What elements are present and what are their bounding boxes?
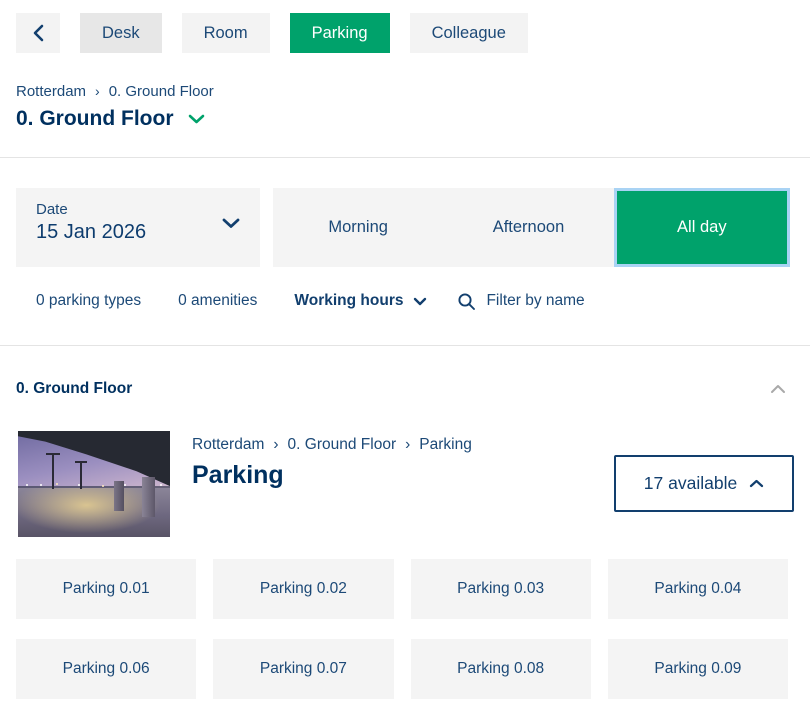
chevron-up-icon [749,479,764,488]
breadcrumb-building[interactable]: Rotterdam [16,83,86,101]
amenities-filter[interactable]: 0 amenities [178,292,257,310]
parking-spots-grid: Parking 0.01 Parking 0.02 Parking 0.03 P… [16,559,788,699]
daypart-segmented-control: Morning Afternoon All day [273,188,790,267]
breadcrumb-separator-icon: › [273,436,278,454]
spot-button-parking-0-04[interactable]: Parking 0.04 [608,559,788,619]
date-selector[interactable]: Date 15 Jan 2026 [16,188,260,267]
tab-room[interactable]: Room [182,13,270,53]
chevron-down-icon [188,114,205,124]
back-button[interactable] [16,13,60,53]
working-hours-label: Working hours [294,292,403,310]
area-breadcrumb-floor[interactable]: 0. Ground Floor [288,436,397,454]
availability-count: 17 available [644,473,737,494]
tab-colleague[interactable]: Colleague [410,13,528,53]
segment-morning[interactable]: Morning [273,188,443,267]
spot-button-parking-0-03[interactable]: Parking 0.03 [411,559,591,619]
date-value: 15 Jan 2026 [36,221,240,244]
availability-dropdown-button[interactable]: 17 available [614,455,794,512]
area-breadcrumb-area[interactable]: Parking [419,436,472,454]
chevron-up-icon [770,384,786,394]
spot-button-parking-0-01[interactable]: Parking 0.01 [16,559,196,619]
segment-afternoon[interactable]: Afternoon [443,188,613,267]
date-daypart-row: Date 15 Jan 2026 Morning Afternoon All d… [16,188,790,267]
tab-parking[interactable]: Parking [290,13,390,53]
working-hours-filter[interactable]: Working hours [294,292,427,310]
area-photo [18,431,170,537]
area-breadcrumb-building[interactable]: Rotterdam [192,436,264,454]
page-title: 0. Ground Floor [16,106,174,132]
chevron-down-icon [222,218,240,229]
area-card-main: Rotterdam › 0. Ground Floor › Parking Pa… [192,431,614,537]
section-title: 0. Ground Floor [16,380,132,398]
spot-button-parking-0-08[interactable]: Parking 0.08 [411,639,591,699]
area-title: Parking [192,461,614,490]
segment-all-day[interactable]: All day [614,188,790,267]
divider [0,157,810,158]
breadcrumb: Rotterdam › 0. Ground Floor [16,83,794,101]
search-icon [457,292,476,311]
breadcrumb-separator-icon: › [95,82,100,100]
search-input[interactable] [486,292,636,310]
spot-button-parking-0-02[interactable]: Parking 0.02 [213,559,393,619]
filter-chips-row: 0 parking types 0 amenities Working hour… [36,290,794,312]
collapse-section-button[interactable] [770,384,786,394]
chevron-down-icon [413,297,427,306]
floor-selector[interactable]: 0. Ground Floor [16,106,794,132]
parking-area-card: Rotterdam › 0. Ground Floor › Parking Pa… [18,431,794,537]
chevron-left-icon [33,24,44,42]
floor-header: Rotterdam › 0. Ground Floor 0. Ground Fl… [16,83,794,132]
breadcrumb-separator-icon: › [405,436,410,454]
tab-desk[interactable]: Desk [80,13,162,53]
name-filter [457,292,636,311]
divider [0,345,810,346]
spot-button-parking-0-09[interactable]: Parking 0.09 [608,639,788,699]
floor-section-header: 0. Ground Floor [16,379,794,398]
booking-page: Desk Room Parking Colleague Rotterdam › … [0,0,810,706]
parking-types-filter[interactable]: 0 parking types [36,292,141,310]
breadcrumb-floor[interactable]: 0. Ground Floor [109,83,214,101]
area-breadcrumb: Rotterdam › 0. Ground Floor › Parking [192,436,614,454]
date-label: Date [36,201,240,218]
top-navigation: Desk Room Parking Colleague [16,13,794,53]
spot-button-parking-0-07[interactable]: Parking 0.07 [213,639,393,699]
spot-button-parking-0-06[interactable]: Parking 0.06 [16,639,196,699]
